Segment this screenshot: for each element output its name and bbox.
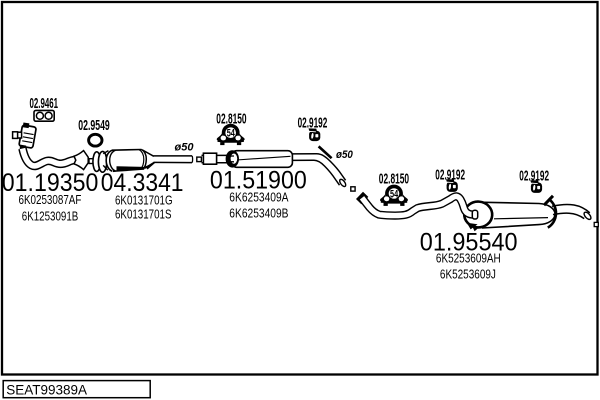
- svg-text:ø50: ø50: [175, 141, 195, 153]
- svg-text:6K6253409A: 6K6253409A: [229, 189, 288, 205]
- svg-text:6K0131701G: 6K0131701G: [115, 193, 173, 208]
- svg-text:02.8150: 02.8150: [379, 170, 409, 187]
- svg-text:6K0131701S: 6K0131701S: [115, 207, 172, 222]
- svg-text:6K1253091B: 6K1253091B: [22, 209, 79, 224]
- svg-text:6K5253609AH: 6K5253609AH: [436, 251, 501, 266]
- svg-text:02.9549: 02.9549: [78, 116, 110, 133]
- svg-text:SEAT99389A: SEAT99389A: [6, 383, 87, 398]
- svg-text:6K0253087AF: 6K0253087AF: [19, 193, 82, 208]
- svg-text:6K5253609J: 6K5253609J: [440, 267, 496, 282]
- svg-text:02.9461: 02.9461: [30, 94, 59, 111]
- svg-text:6K6253409B: 6K6253409B: [229, 205, 288, 221]
- svg-text:ø50: ø50: [336, 149, 353, 161]
